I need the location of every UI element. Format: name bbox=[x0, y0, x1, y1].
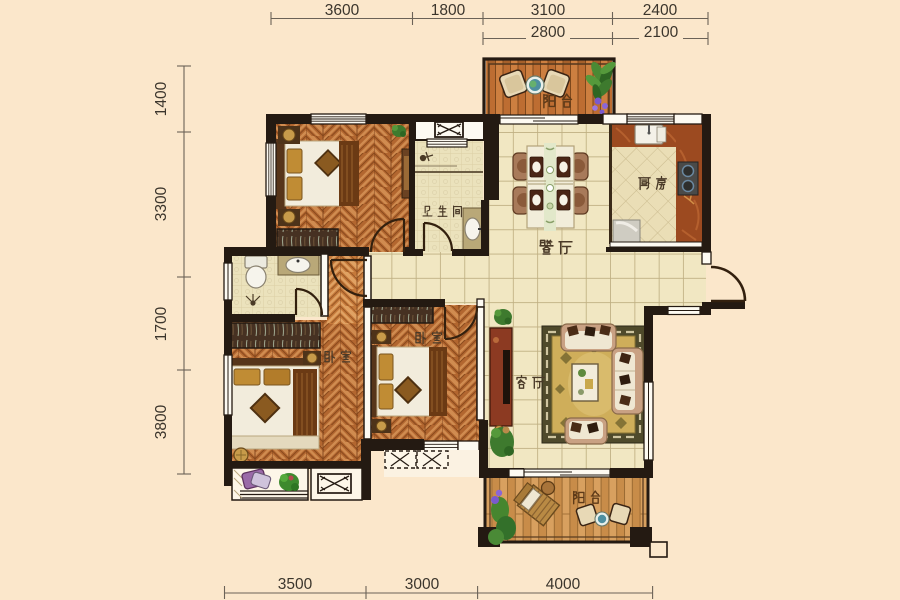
svg-text:3300: 3300 bbox=[153, 186, 170, 221]
svg-text:1800: 1800 bbox=[431, 2, 466, 19]
svg-text:3500: 3500 bbox=[278, 576, 313, 593]
svg-text:4000: 4000 bbox=[546, 576, 581, 593]
svg-text:1700: 1700 bbox=[153, 306, 170, 341]
svg-text:2400: 2400 bbox=[643, 2, 678, 19]
svg-text:3800: 3800 bbox=[153, 404, 170, 439]
svg-text:2100: 2100 bbox=[644, 24, 679, 41]
svg-text:2800: 2800 bbox=[531, 24, 566, 41]
svg-text:3600: 3600 bbox=[325, 2, 360, 19]
svg-text:3000: 3000 bbox=[405, 576, 440, 593]
svg-text:1400: 1400 bbox=[153, 81, 170, 116]
svg-text:3100: 3100 bbox=[531, 2, 566, 19]
